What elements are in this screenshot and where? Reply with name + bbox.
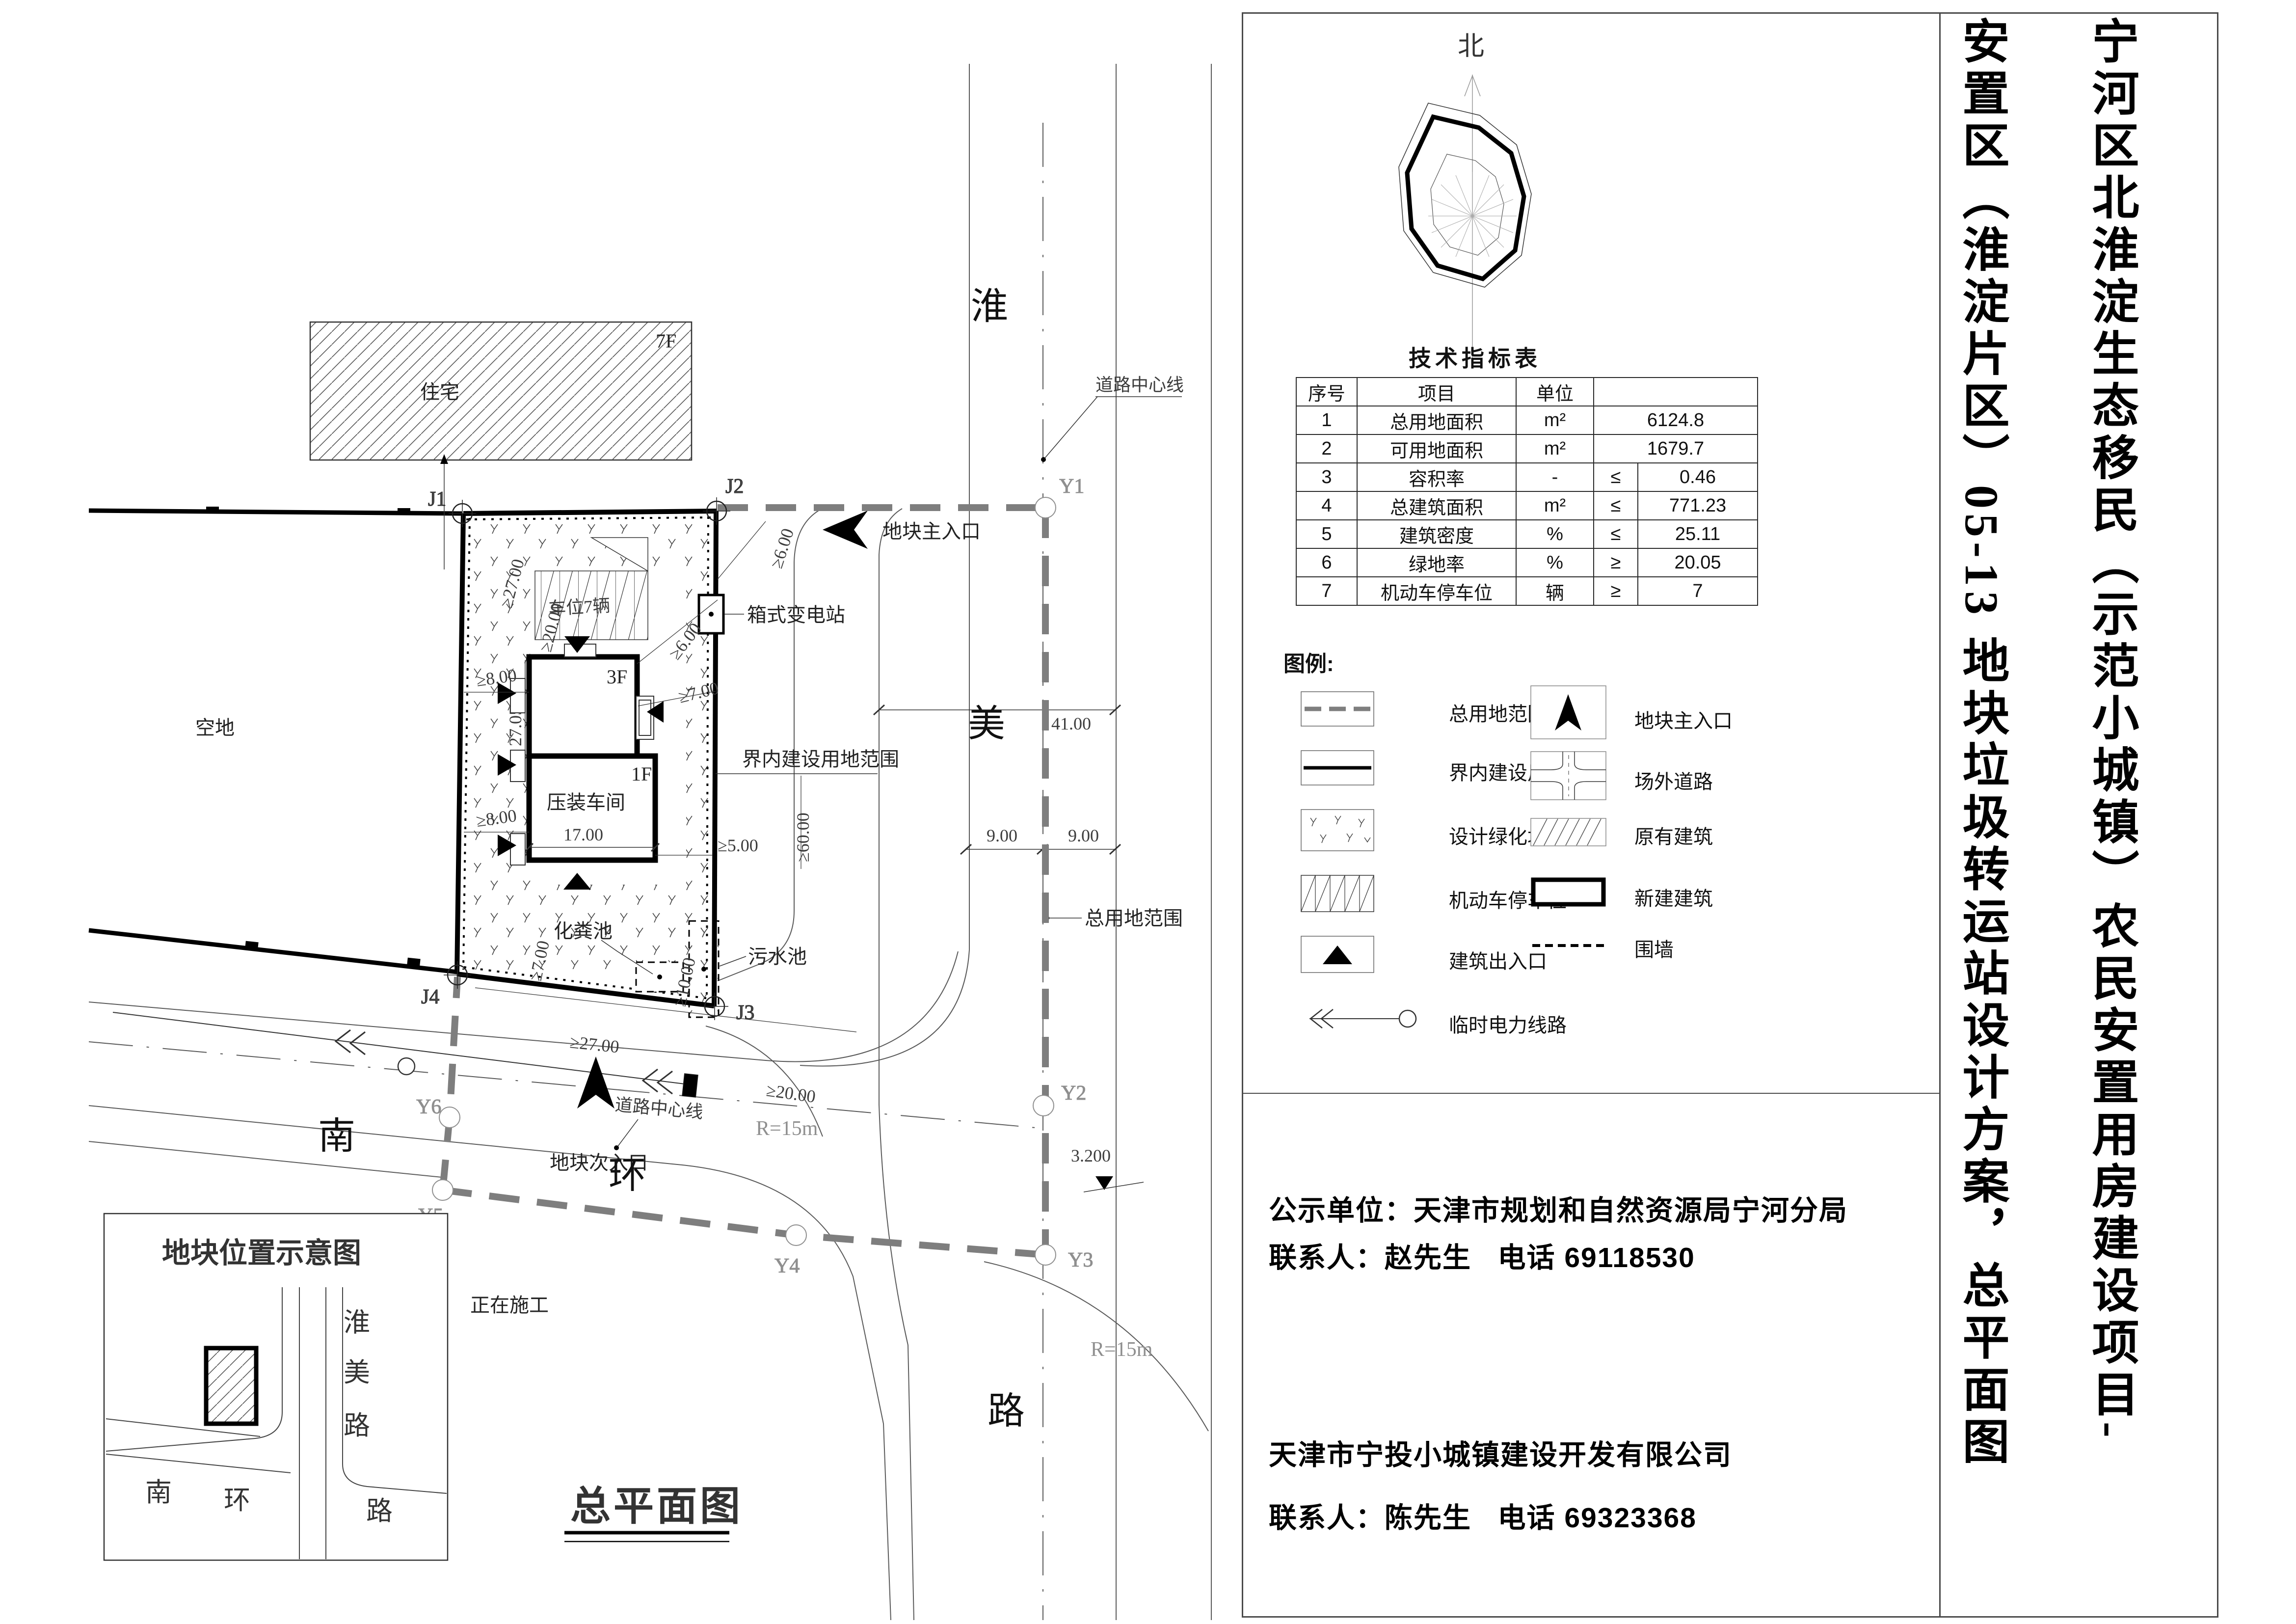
dim-9b: 9.00 <box>1068 826 1099 845</box>
marker-y2: Y2 <box>1061 1082 1086 1105</box>
title-block-line-1: 宁河区北淮淀生态移民（示范小城镇）农民安置用房建设项目- <box>2077 17 2145 1612</box>
plan-title: 总平面图 <box>564 1484 743 1542</box>
legend-building-entrance-icon <box>1301 936 1374 973</box>
header-unit: 单位 <box>1516 378 1594 406</box>
marker-y3: Y3 <box>1068 1249 1093 1272</box>
header-no: 序号 <box>1296 378 1357 406</box>
frame-bottom <box>1242 1616 2218 1618</box>
table-row: 6 绿地率 % ≥ 20.05 <box>1296 548 1758 577</box>
legend-outer-boundary-icon <box>1301 691 1374 727</box>
dim-r15b: R=15m <box>1091 1338 1153 1361</box>
legend-offsite-road-icon <box>1530 751 1606 800</box>
legend-inner-boundary-icon <box>1301 750 1374 785</box>
notice-line-1: 公示单位：天津市规划和自然资源局宁河分局 <box>1269 1188 1848 1228</box>
inset-location-map: 地块位置示意图 淮 美 路 南 环 路 <box>104 1214 448 1560</box>
table-row: 4 总建筑面积 m² ≤ 771.23 <box>1296 491 1758 520</box>
table-row: 2 可用地面积 m² 1679.7 <box>1296 434 1758 463</box>
legend-main-entrance-icon <box>1530 685 1606 739</box>
under-construction-label: 正在施工 <box>470 1294 549 1316</box>
inset-title: 地块位置示意图 <box>162 1237 361 1269</box>
table-row: 7 机动车停车位 辆 ≥ 7 <box>1296 577 1758 605</box>
septic-label: 化粪池 <box>554 920 613 942</box>
notice-line-4: 联系人：陈先生 电话 69323368 <box>1269 1495 1697 1536</box>
marker-j4: J4 <box>421 986 439 1008</box>
marker-j1: J1 <box>428 488 446 511</box>
north-rose: 北 <box>1369 20 1575 363</box>
road-char-lu: 路 <box>988 1391 1025 1432</box>
table-row: 3 容积率 - ≤ 0.46 <box>1296 463 1758 491</box>
substation-label: 箱式变电站 <box>747 604 845 626</box>
floors-3f-label: 3F <box>607 666 627 688</box>
secondary-entrance-arrow-icon <box>577 1056 614 1109</box>
legend-power-line-icon <box>1301 1001 1428 1036</box>
marker-j2: J2 <box>725 475 744 498</box>
floors-1f-label: 1F <box>631 763 652 785</box>
dim-ge60: ≥60.00 <box>793 812 813 862</box>
legend-fence-icon <box>1530 936 1606 955</box>
header-value <box>1594 378 1758 406</box>
marker-j3: J3 <box>736 1001 754 1024</box>
title-block-line-2: 安置区（淮淀片区）05-13 地块垃圾转运站设计方案，总平面图 <box>1948 17 2016 1612</box>
road-centerline-label-top: 道路中心线 <box>1095 375 1184 395</box>
frame-divider <box>1242 1093 1941 1094</box>
legend-existing-building-icon <box>1530 818 1606 846</box>
road-char-huai: 淮 <box>971 286 1008 327</box>
site-plan-drawing: 空地 住宅 7F <box>0 0 1242 1624</box>
dim-41: 41.00 <box>1051 714 1091 733</box>
marker-y6: Y6 <box>416 1096 441 1118</box>
inset-char-lu1: 路 <box>344 1411 370 1440</box>
header-item: 项目 <box>1357 378 1516 406</box>
north-label: 北 <box>1458 31 1484 61</box>
legend-label-main-entrance: 地块主入口 <box>1634 705 1733 733</box>
plan-title-text: 总平面图 <box>570 1484 743 1529</box>
dim-ge20b: ≥20.00 <box>765 1080 817 1107</box>
dim-ge27b: ≥27.00 <box>569 1032 620 1056</box>
road-centerline-label-bottom: 道路中心线 <box>614 1095 704 1122</box>
dim-ge6b: ≥6.00 <box>767 526 798 570</box>
road-char-huan: 环 <box>609 1155 646 1196</box>
legend-green-icon <box>1301 809 1374 851</box>
site-driveway <box>706 509 914 1620</box>
frame-left <box>1242 12 1243 1618</box>
dim-r15a: R=15m <box>756 1117 818 1140</box>
legend-parking-icon <box>1301 875 1374 912</box>
main-entrance-label: 地块主入口 <box>882 520 981 542</box>
dim-ge5: ≥5.00 <box>718 836 758 855</box>
site-plan-sheet: 空地 住宅 7F <box>0 0 2296 1624</box>
marker-y4: Y4 <box>774 1255 800 1277</box>
inset-char-huai: 淮 <box>344 1308 370 1337</box>
legend-label-fence: 围墙 <box>1634 934 1674 962</box>
marker-y1: Y1 <box>1059 475 1084 498</box>
outer-land-boundary <box>443 508 1045 1255</box>
table-header-row: 序号 项目 单位 <box>1296 378 1758 406</box>
inset-char-nan: 南 <box>145 1478 172 1507</box>
table-row: 5 建筑密度 % ≤ 25.11 <box>1296 520 1758 548</box>
inset-char-huan: 环 <box>224 1486 250 1515</box>
tech-table-title: 技术指标表 <box>1360 341 1590 373</box>
inset-char-mei: 美 <box>344 1358 370 1387</box>
sewage-label: 污水池 <box>748 946 807 968</box>
legend-new-building-icon <box>1530 877 1606 907</box>
main-entrance: 地块主入口 <box>823 511 981 549</box>
table-row: 1 总用地面积 m² 6124.8 <box>1296 406 1758 434</box>
notice-line-3: 天津市宁投小城镇建设开发有限公司 <box>1269 1433 1732 1473</box>
dim-17: 17.00 <box>563 825 603 844</box>
frame-right <box>2217 12 2218 1618</box>
legend-label-new-building: 新建建筑 <box>1634 883 1713 911</box>
workshop-label: 压装车间 <box>547 791 625 813</box>
vacant-land-label: 空地 <box>195 717 235 739</box>
road-char-mei: 美 <box>968 704 1005 745</box>
legend-title: 图例: <box>1283 646 1334 677</box>
dim-elev: 3.200 <box>1071 1146 1111 1165</box>
substation: 箱式变电站 <box>699 595 845 633</box>
inner-boundary-label: 界内建设用地范围 <box>742 748 899 770</box>
outer-boundary-label: 总用地范围 <box>1085 907 1183 929</box>
inset-char-lu2: 路 <box>366 1496 393 1526</box>
notice-line-2: 联系人：赵先生 电话 69118530 <box>1269 1235 1695 1275</box>
frame-mid <box>1939 12 1941 1618</box>
tech-indicator-table: 序号 项目 单位 1 总用地面积 m² 6124.8 2 可用地面积 m² 16… <box>1296 377 1758 606</box>
main-entrance-arrow-icon <box>823 511 868 549</box>
frame-top <box>1242 12 2218 14</box>
dim-9a: 9.00 <box>987 826 1017 845</box>
legend-label-existing-building: 原有建筑 <box>1634 821 1713 849</box>
inset-site-rect <box>206 1348 256 1424</box>
residence-label: 住宅 <box>420 381 459 403</box>
vacant-land: 空地 <box>89 507 462 972</box>
road-char-nan: 南 <box>318 1116 355 1157</box>
residence-floors-label: 7F <box>656 330 676 352</box>
legend-label-offsite-road: 场外道路 <box>1634 766 1713 794</box>
legend-label-power-line: 临时电力线路 <box>1449 1009 1567 1038</box>
